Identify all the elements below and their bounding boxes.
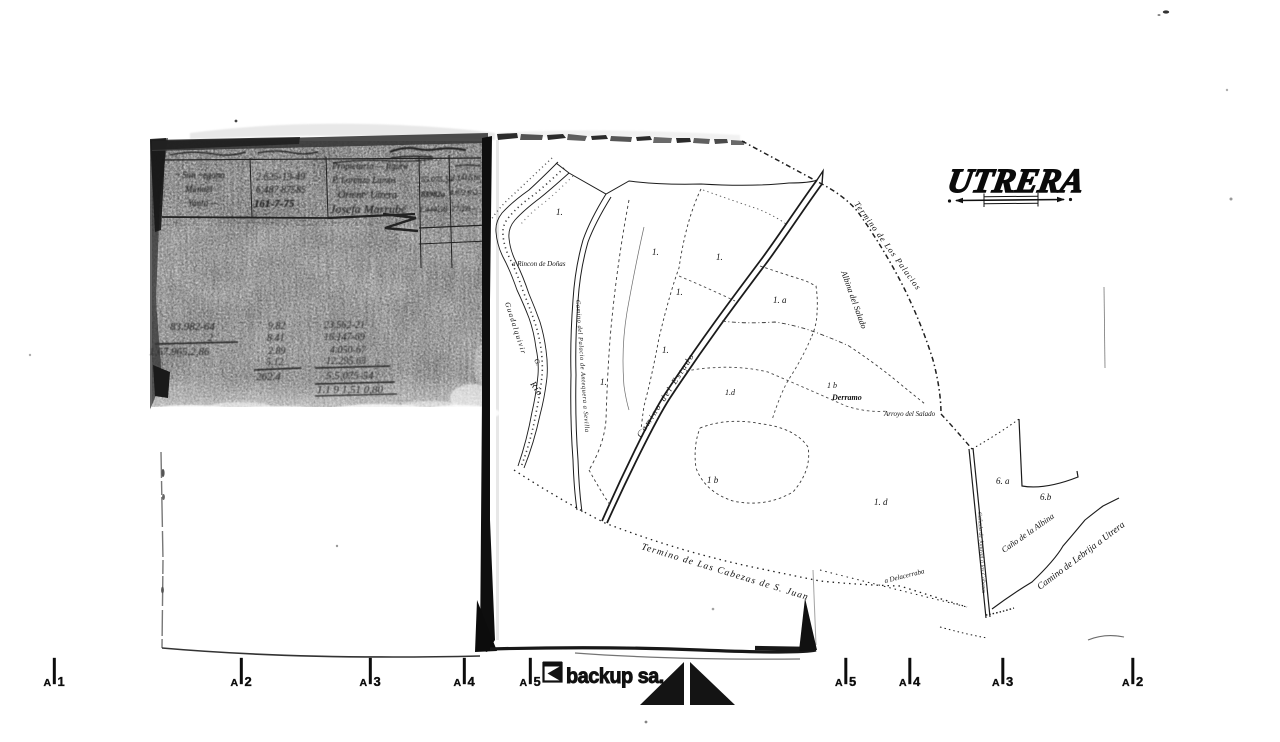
svg-text:A: A	[992, 677, 1000, 689]
svg-text:Propietario — figura: Propietario — figura	[331, 161, 409, 171]
svg-text:12.295.63: 12.295.63	[326, 356, 366, 367]
svg-text:Albina del Salado: Albina del Salado	[839, 268, 870, 330]
svg-text:1.: 1.	[556, 207, 563, 217]
svg-text:1. d: 1. d	[874, 497, 888, 507]
svg-text:5,5,075-54: 5,5,075-54	[326, 370, 374, 382]
svg-text:Caño de la Albina: Caño de la Albina	[999, 511, 1055, 555]
svg-text:6.487 87585: 6.487 87585	[256, 185, 306, 196]
svg-text:1.d: 1.d	[725, 388, 736, 397]
svg-text:G.: G.	[532, 357, 542, 367]
svg-text:83.982-64: 83.982-64	[170, 321, 215, 333]
svg-text:6. a: 6. a	[996, 476, 1010, 486]
svg-text:1.141.516: 1.141.516	[452, 174, 481, 182]
svg-text:Derramo: Derramo	[831, 393, 862, 402]
svg-text:23.562-21: 23.562-21	[324, 320, 365, 331]
svg-text:P. Lorenzo Lamas: P. Lorenzo Lamas	[331, 175, 397, 185]
svg-text:3: 3	[374, 674, 381, 689]
svg-text:A: A	[520, 677, 528, 689]
svg-text:5: 5	[849, 674, 856, 689]
svg-text:Yanta —: Yanta —	[188, 198, 219, 208]
svg-text:Camino del Palacio de Antequer: Camino del Palacio de Antequera a Sevill…	[574, 300, 590, 433]
svg-text:Termino de Los Palacios: Termino de Los Palacios	[852, 199, 923, 292]
svg-text:A: A	[835, 677, 843, 689]
svg-text:1 b: 1 b	[707, 475, 719, 485]
svg-text:4: 4	[913, 674, 921, 689]
svg-text:A: A	[44, 677, 52, 689]
svg-text:backup sa.: backup sa.	[566, 664, 664, 688]
svg-text:Rio: Rio	[528, 379, 546, 398]
svg-text:Cañada de Jonuval a las Cabeza: Cañada de Jonuval a las Cabezas	[976, 512, 986, 594]
svg-text:A: A	[1122, 677, 1130, 689]
svg-text:Josefa Marrubé: Josefa Marrubé	[330, 202, 407, 216]
svg-text:16.147-69: 16.147-69	[324, 332, 365, 343]
svg-text:Camino del Estado: Camino del Estado	[634, 350, 696, 439]
svg-text:Oriento Utrera: Oriento Utrera	[338, 189, 397, 201]
svg-text:2.625-13-49: 2.625-13-49	[256, 172, 305, 183]
svg-text:4: 4	[468, 674, 476, 689]
svg-text:Guadalquivir: Guadalquivir	[503, 301, 529, 356]
svg-text:3: 3	[1006, 674, 1013, 689]
svg-text:Camino de Lebrija a Utrera: Camino de Lebrija a Utrera	[1036, 520, 1128, 592]
svg-text:5.12: 5.12	[266, 357, 284, 368]
svg-text:A: A	[360, 677, 368, 689]
svg-text:262.4: 262.4	[256, 371, 281, 383]
svg-text:2: 2	[1136, 674, 1143, 689]
svg-text:83982a: 83982a	[421, 190, 445, 199]
svg-text:6.b: 6.b	[1040, 492, 1052, 502]
svg-text:4.672.652-: 4.672.652-	[450, 189, 481, 197]
svg-text:A: A	[454, 677, 462, 689]
svg-text:5: 5	[534, 674, 541, 689]
svg-text:~ San ~egona: ~ San ~egona	[175, 170, 225, 180]
svg-text:55.075.54: 55.075.54	[421, 175, 453, 184]
svg-text:Arroyo del Salado: Arroyo del Salado	[883, 410, 936, 418]
svg-text:1.: 1.	[652, 247, 659, 257]
svg-text:A: A	[899, 677, 907, 689]
svg-text:2.89: 2.89	[268, 346, 286, 357]
svg-text:1.: 1.	[662, 345, 669, 355]
svg-text:1.: 1.	[716, 252, 723, 262]
svg-text:1. a: 1. a	[773, 295, 787, 305]
svg-text:1.444.56: 1.444.56	[419, 205, 447, 214]
svg-text:161-7-75: 161-7-75	[254, 198, 295, 210]
svg-text:9.82: 9.82	[268, 321, 286, 332]
svg-text:1: 1	[58, 674, 65, 689]
svg-text:a Rincon de Doñas: a Rincon de Doñas	[512, 260, 566, 268]
svg-text:4.050-67: 4.050-67	[330, 345, 367, 356]
svg-text:1.: 1.	[600, 377, 607, 387]
svg-text:8.41: 8.41	[267, 333, 285, 344]
svg-text:77.391-: 77.391-	[452, 205, 474, 213]
svg-text:UTRERA: UTRERA	[945, 162, 1088, 200]
svg-text:A: A	[231, 677, 239, 689]
svg-text:1.: 1.	[676, 287, 683, 297]
svg-text:Termino de Las Cabezas de S. J: Termino de Las Cabezas de S. Juan	[640, 542, 810, 603]
svg-text:1 b: 1 b	[827, 381, 837, 390]
svg-text:Manuel: Manuel	[184, 184, 213, 194]
svg-text:2: 2	[245, 674, 252, 689]
svg-text:a Delacerraba: a Delacerraba	[884, 567, 926, 585]
